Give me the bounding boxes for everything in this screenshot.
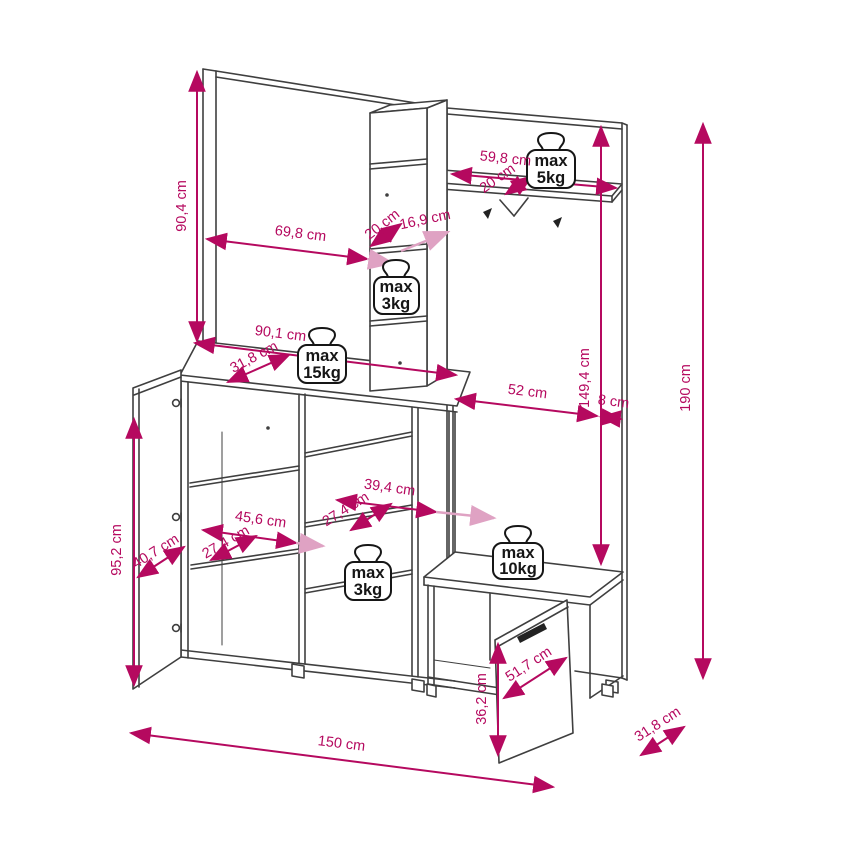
bench-foot — [602, 684, 613, 697]
weight-icon — [309, 328, 335, 346]
dim-label-total-height: 190 cm — [678, 364, 694, 412]
badge-weight-value: 5kg — [537, 169, 565, 187]
dimension-panel-thickness — [601, 417, 621, 419]
coat-hooks — [483, 208, 562, 228]
coat-hook-icon — [483, 208, 492, 219]
depth-arrow — [436, 512, 494, 518]
dim-label-shelf-inner-width: 39,4 cm — [363, 477, 416, 500]
badge-weight-value: 3kg — [354, 581, 382, 599]
weight-icon — [538, 133, 564, 151]
dim-label-panel-height: 149,4 cm — [577, 348, 593, 408]
weight-icon — [355, 545, 381, 563]
weight-limit-badge-5kg: max 5kg — [527, 133, 575, 188]
upper-shelf-column — [370, 100, 447, 391]
dim-label-shelf-inner-depth: 27,4 cm — [320, 489, 372, 530]
weight-limit-badge-3kg-lower: max 3kg — [345, 545, 391, 600]
badge-max-label: max — [305, 347, 339, 365]
dimension-mirror-width — [207, 239, 367, 259]
badge-max-label: max — [534, 152, 568, 170]
dim-label-door-height: 95,2 cm — [109, 524, 125, 576]
coat-hook-icon — [553, 217, 562, 228]
badge-weight-value: 3kg — [382, 295, 410, 313]
cabinet-foot — [292, 664, 304, 678]
weight-limit-badge-10kg: max 10kg — [493, 526, 543, 579]
dim-label-total-width: 150 cm — [317, 733, 366, 755]
wall-shelf — [428, 170, 622, 216]
dim-label-cabinet-width: 90,1 cm — [254, 323, 307, 345]
bench-flap-door — [495, 600, 573, 763]
furniture-dimension-diagram: max 5kg max 3kg max 15kg max 3kg max 10k… — [0, 0, 868, 868]
badge-weight-value: 15kg — [303, 364, 341, 382]
shelf-bracket — [500, 200, 514, 216]
badge-max-label: max — [379, 278, 413, 296]
dimension-niche-width — [456, 399, 597, 416]
depth-arrow — [296, 543, 323, 546]
dim-label-mirror-width: 69,8 cm — [274, 223, 327, 245]
badge-weight-value: 10kg — [499, 560, 537, 578]
badge-max-label: max — [351, 564, 385, 582]
diagram-canvas: max 5kg max 3kg max 15kg max 3kg max 10k… — [0, 0, 868, 868]
weight-icon — [383, 260, 409, 278]
weight-icon — [505, 526, 531, 544]
dim-label-total-depth: 31,8 cm — [632, 704, 684, 746]
cabinet-door — [133, 370, 181, 689]
dim-label-flap-height: 36,2 cm — [474, 673, 490, 725]
dim-label-mirror-height: 90,4 cm — [174, 180, 190, 232]
bench-foot — [427, 684, 436, 697]
dim-label-niche-width: 52 cm — [507, 382, 548, 403]
cabinet-foot — [412, 679, 424, 692]
